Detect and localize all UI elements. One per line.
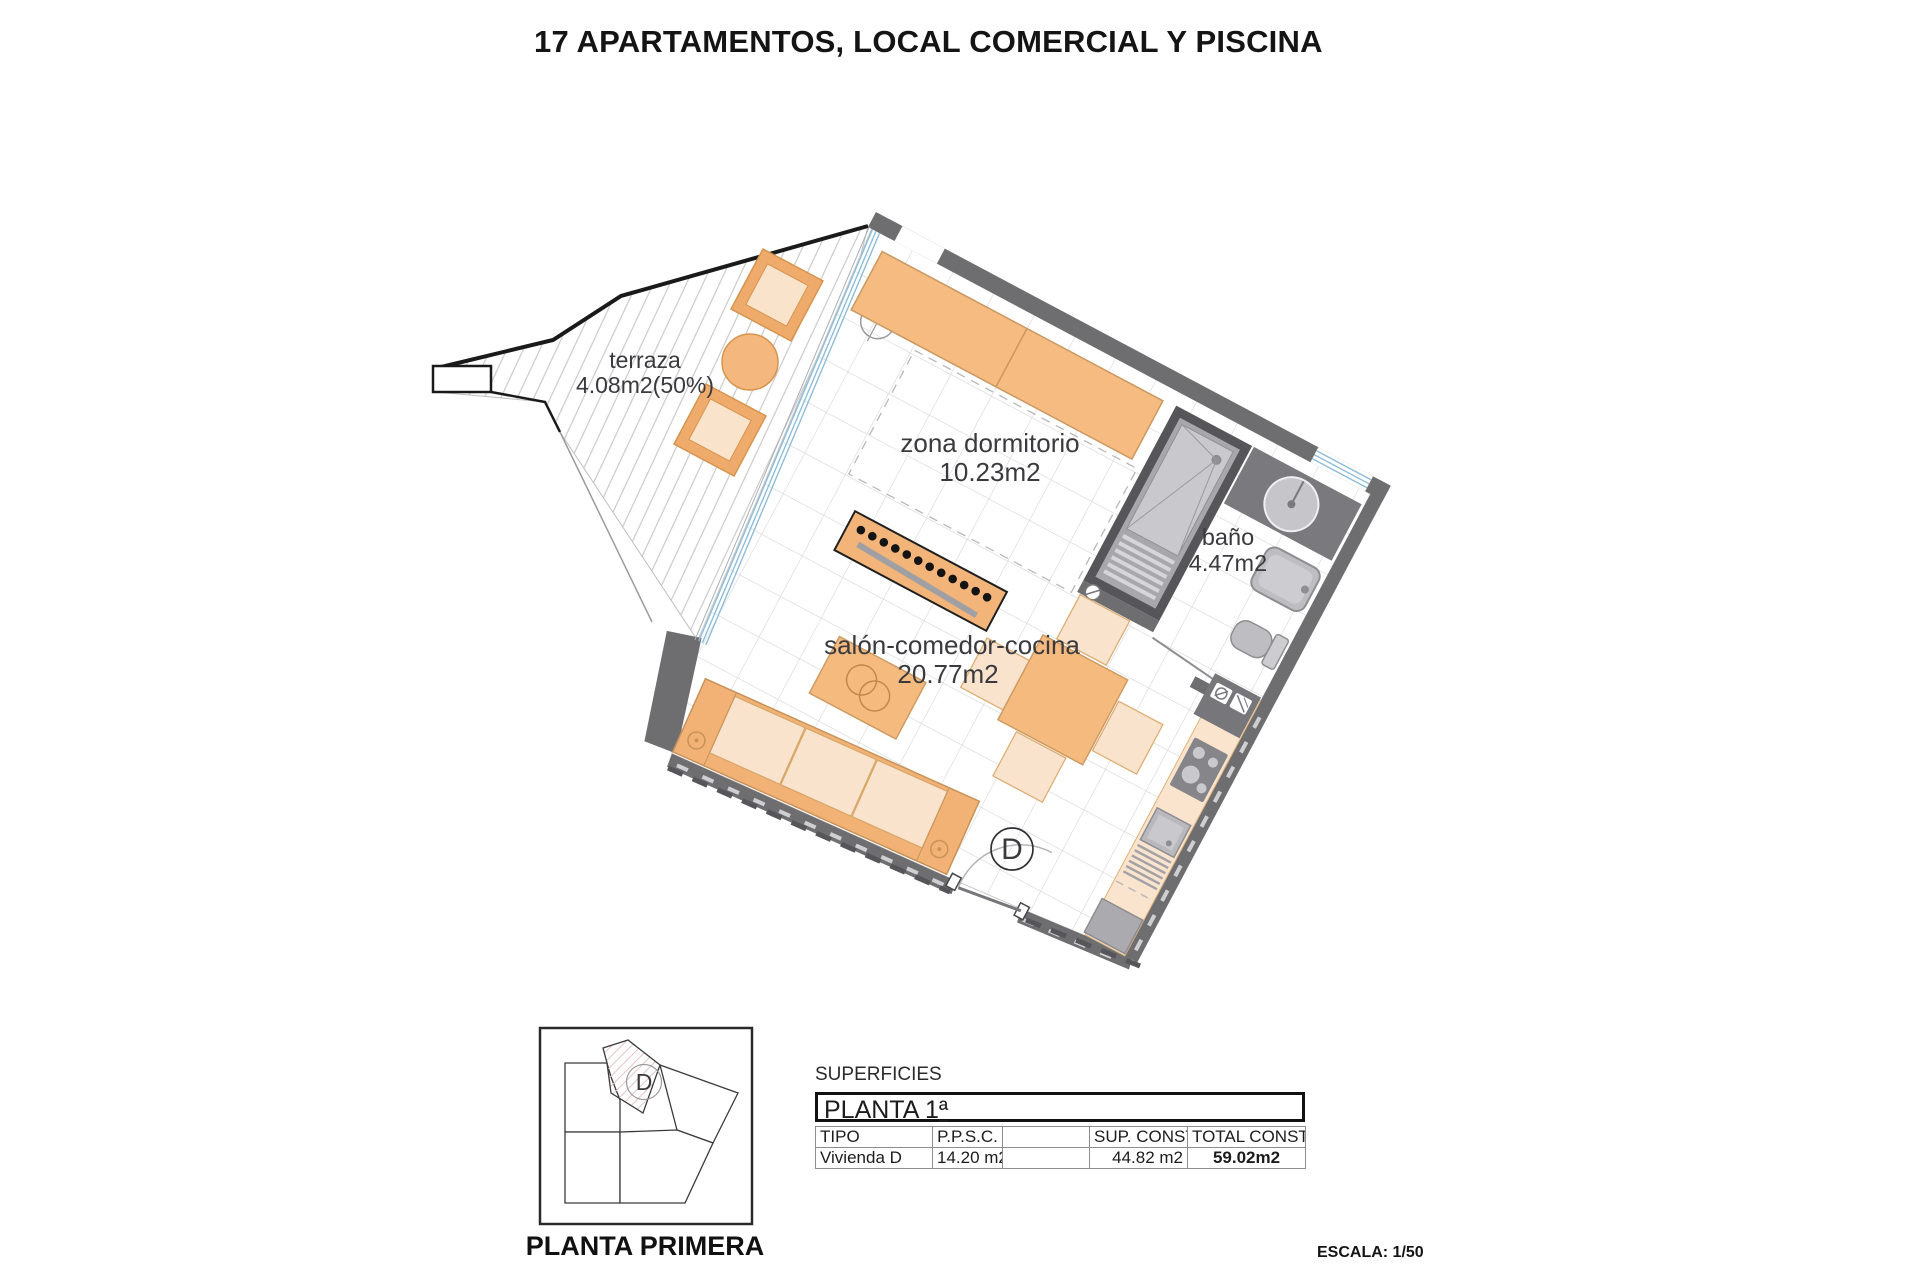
terrace-round-table [722, 334, 778, 390]
dormitorio-label: zona dormitorio [900, 428, 1079, 458]
cell-sup-const: 44.82 m2 [1090, 1148, 1188, 1169]
cell-vivienda: Vivienda D [816, 1148, 933, 1169]
scale-label: ESCALA: 1/50 [1317, 1244, 1424, 1262]
door-type-letter: D [1001, 833, 1023, 866]
terraza-area: 4.08m2(50%) [576, 372, 714, 398]
key-plan: D [540, 1028, 752, 1224]
cell-empty [1003, 1148, 1090, 1169]
dormitorio-area: 10.23m2 [939, 457, 1040, 487]
surfaces-panel: SUPERFICIES PLANTA 1ª TIPO P.P.S.C. SUP.… [815, 1064, 1305, 1169]
col-sup-const: SUP. CONST. [1090, 1127, 1188, 1148]
col-ppsc: P.P.S.C. [933, 1127, 1003, 1148]
surfaces-header-row: TIPO P.P.S.C. SUP. CONST. TOTAL CONST. [816, 1127, 1306, 1148]
col-tipo: TIPO [816, 1127, 933, 1148]
key-plan-caption: PLANTA PRIMERA [495, 1231, 795, 1262]
bano-label: baño [1202, 524, 1254, 550]
terrace-wall-stub [433, 366, 491, 392]
salon-label: salón-comedor-cocina [824, 630, 1080, 660]
floor-title-box: PLANTA 1ª [815, 1092, 1305, 1122]
surfaces-table: TIPO P.P.S.C. SUP. CONST. TOTAL CONST. V… [815, 1126, 1306, 1169]
key-unit [565, 1132, 620, 1203]
floor-title: PLANTA 1 [824, 1096, 939, 1124]
cell-total-const: 59.02m2 [1188, 1148, 1306, 1169]
terraza-label: terraza [609, 347, 681, 373]
superficies-heading: SUPERFICIES [815, 1064, 1305, 1086]
col-total-const: TOTAL CONST. [1188, 1127, 1306, 1148]
salon-area: 20.77m2 [897, 659, 998, 689]
col-empty [1003, 1127, 1090, 1148]
cell-ppsc: 14.20 m2 [933, 1148, 1003, 1169]
surfaces-data-row: Vivienda D 14.20 m2 44.82 m2 59.02m2 [816, 1148, 1306, 1169]
key-unit-d-letter: D [636, 1069, 653, 1095]
floor-title-ordinal: ª [939, 1096, 948, 1124]
bano-area: 4.47m2 [1189, 550, 1267, 576]
